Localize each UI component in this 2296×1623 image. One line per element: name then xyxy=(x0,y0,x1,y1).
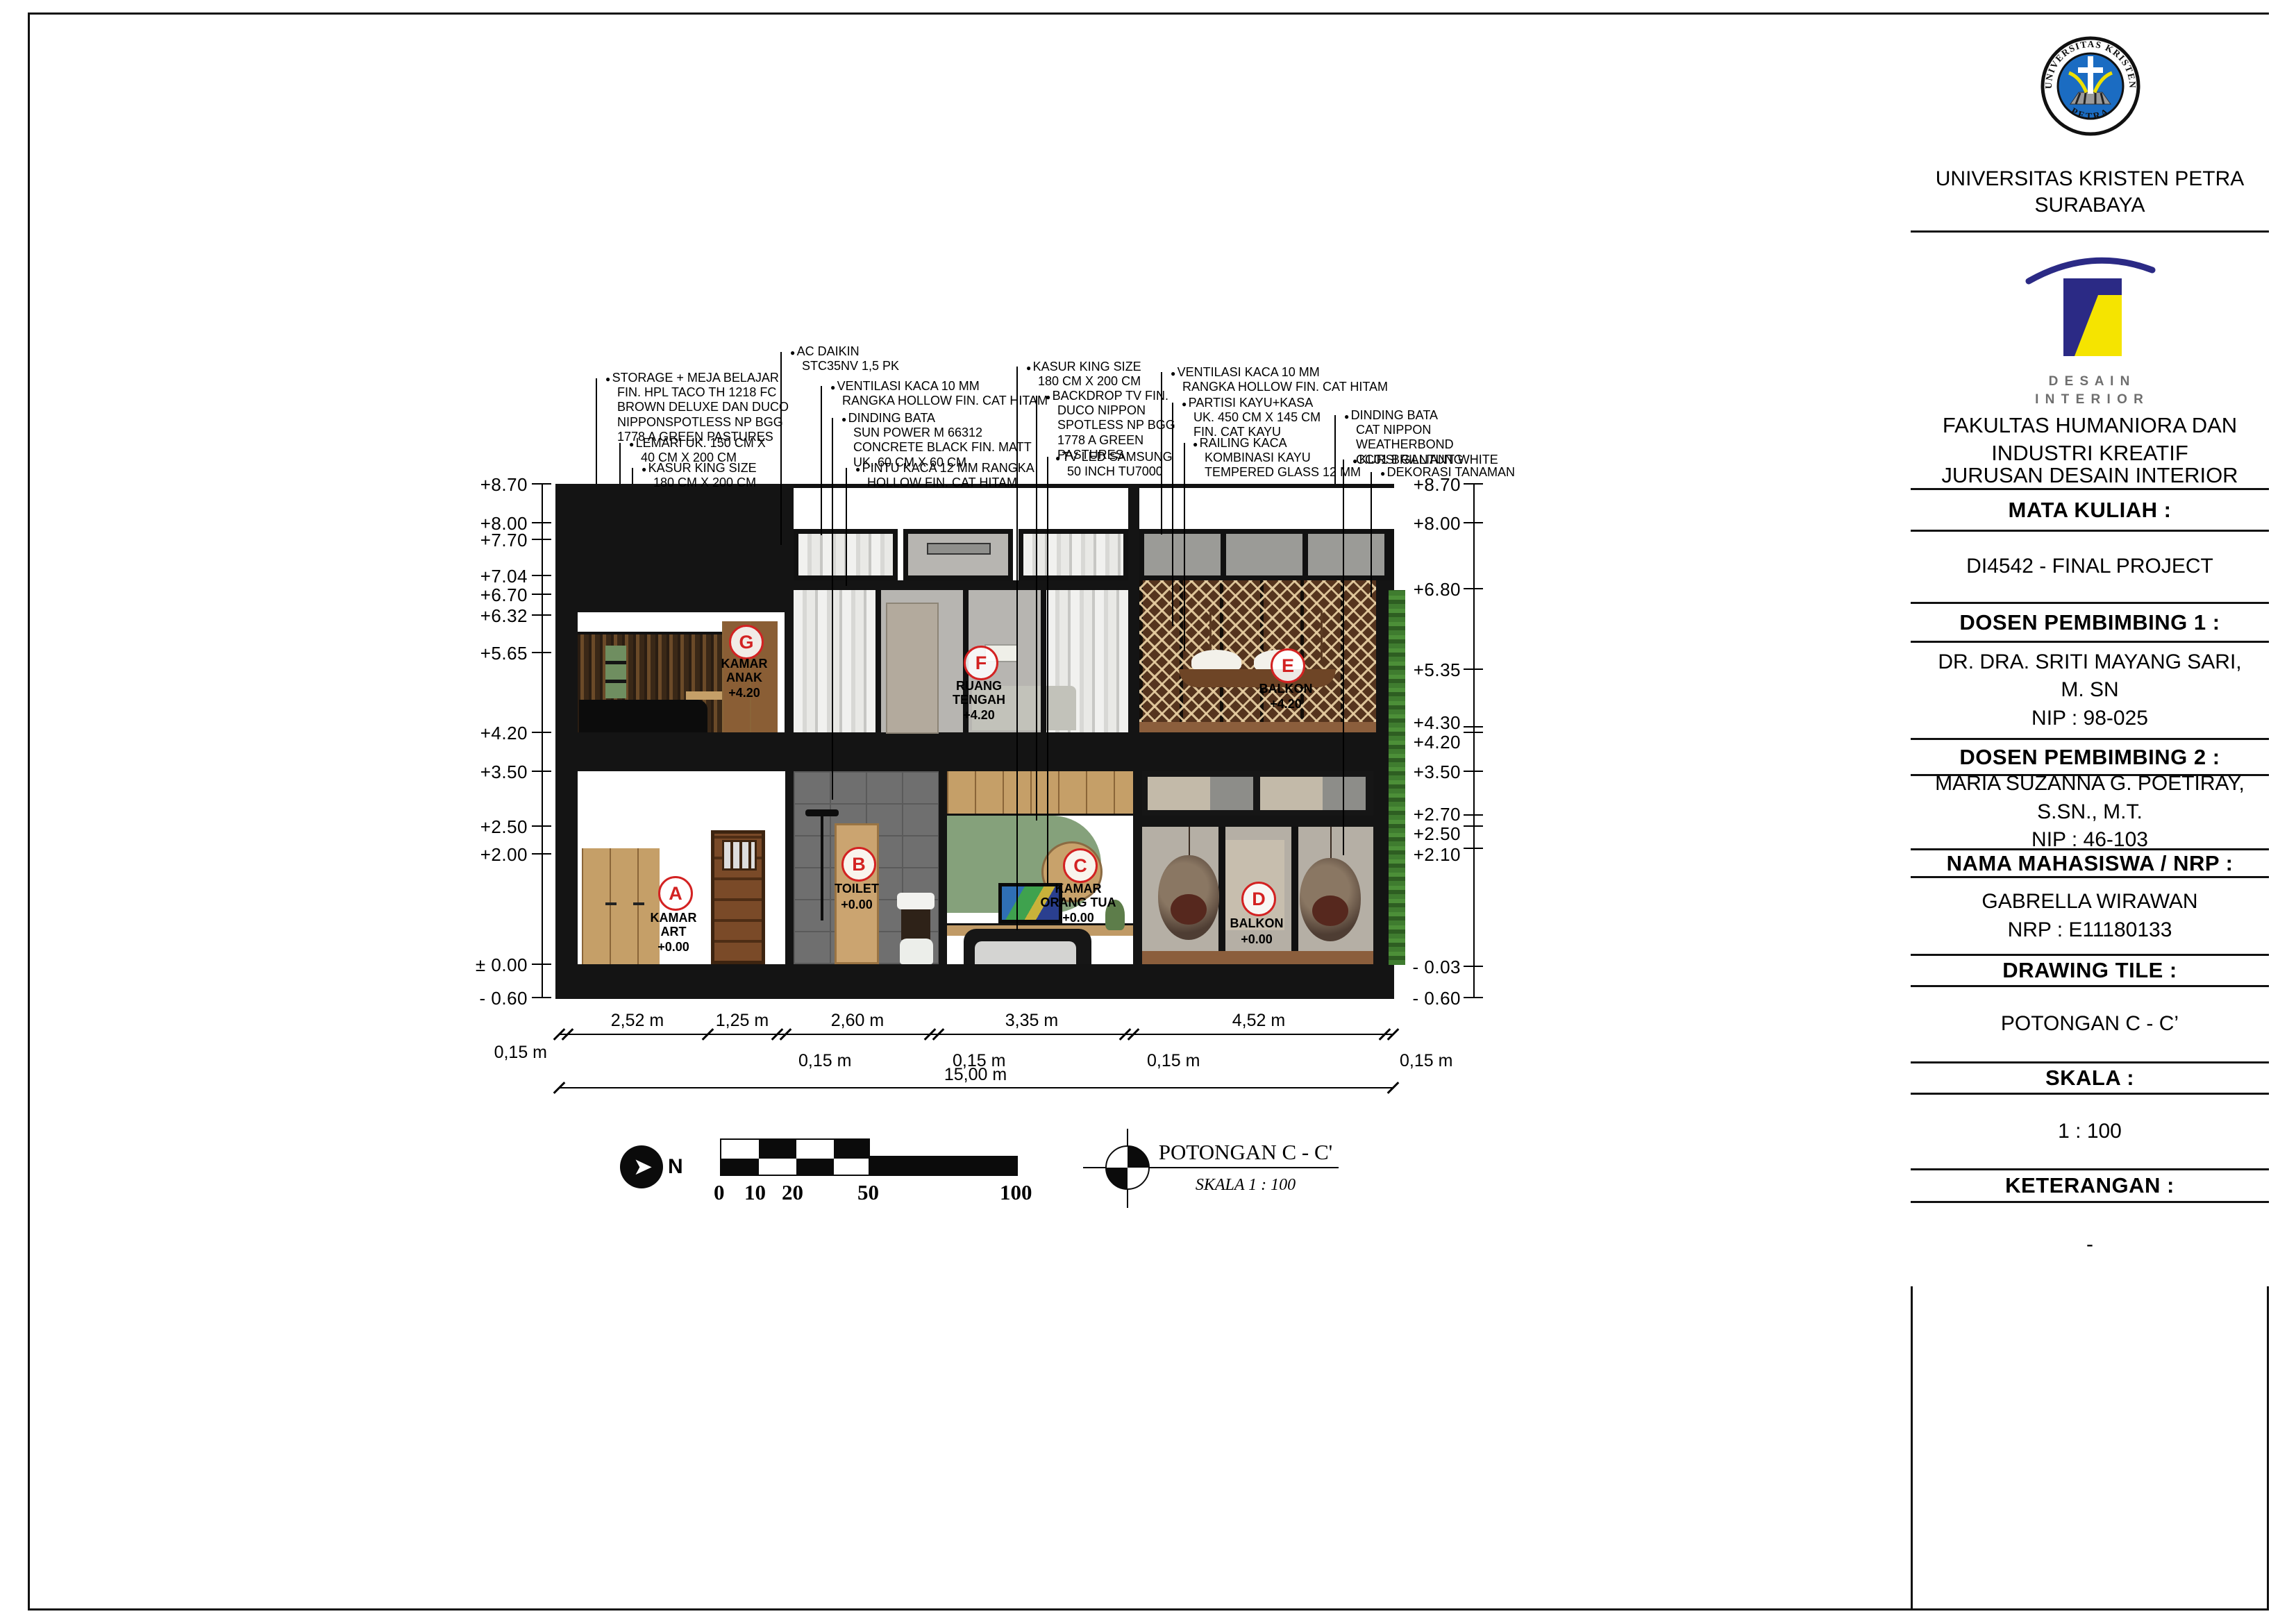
elevation-tick xyxy=(532,825,551,827)
leader-line xyxy=(1343,460,1344,855)
elevation-tick xyxy=(532,652,551,653)
room-level-g: +4.20 xyxy=(689,686,800,700)
dimension-segment: 2,60 m xyxy=(809,1011,906,1031)
ac-unit xyxy=(927,543,991,555)
kamar-anak-cushion-panel xyxy=(605,646,626,698)
wall-c-d xyxy=(1133,771,1142,964)
annotation-ventilasi-kanan: VENTILASI KACA 10 MM RANGKA HOLLOW FIN. … xyxy=(1171,365,1391,394)
leader-line xyxy=(619,443,621,484)
mullion-f3 xyxy=(1041,590,1046,732)
transom-window-f3 xyxy=(1019,529,1128,580)
elevation-label-left: +7.70 xyxy=(444,530,528,551)
scale-number: 10 xyxy=(744,1180,766,1205)
leader-line xyxy=(1371,472,1372,597)
transom-window-e xyxy=(1139,529,1394,580)
university-name: UNIVERSITAS KRISTEN PETRA SURABAYA xyxy=(1911,166,2269,218)
room-level-f: +4.20 xyxy=(923,708,1034,723)
right-elevation-ruler xyxy=(1473,484,1475,998)
elevation-label-right: +5.35 xyxy=(1405,659,1461,681)
annotation-pintu-kaca: PINTU KACA 12 MM RANGKA HOLLOW FIN. CAT … xyxy=(855,461,1055,490)
elevation-tick xyxy=(532,997,551,998)
wall-thickness-label: 0,15 m xyxy=(1147,1051,1214,1071)
elevation-tick xyxy=(1464,848,1483,849)
elevation-tick xyxy=(1464,668,1483,670)
scale-bar-solid xyxy=(870,1156,1018,1176)
glass-wall-header xyxy=(794,580,1128,590)
elevation-tick xyxy=(1464,588,1483,589)
room-letter-d: D xyxy=(1241,882,1276,916)
section-title: POTONGAN C - C' xyxy=(1153,1140,1339,1165)
elevation-label-left: +6.70 xyxy=(444,585,528,606)
upper-cabinet-c xyxy=(947,771,1133,816)
elevation-tick xyxy=(532,522,551,523)
roof-slab-left xyxy=(578,484,794,612)
elevation-tick xyxy=(532,539,551,540)
dosen1-header: DOSEN PEMBIMBING 1 : xyxy=(1911,604,2269,643)
room-level-d: +0.00 xyxy=(1201,932,1312,947)
elevation-label-right: +4.30 xyxy=(1405,712,1461,734)
section-scale-note: SKALA 1 : 100 xyxy=(1153,1176,1339,1195)
chair-rope-2 xyxy=(1330,827,1332,860)
parapet-band xyxy=(794,484,1394,529)
elevation-label-left: +8.70 xyxy=(444,474,528,496)
sheet: { "titleblock": { "university_ring_top":… xyxy=(0,0,2296,1623)
wall-b-c xyxy=(939,771,947,964)
elevation-tick xyxy=(532,853,551,855)
wall-thickness-label: 0,15 m xyxy=(798,1051,865,1071)
annotation-ac-daikin: AC DAIKIN STC35NV 1,5 PK xyxy=(790,344,934,373)
room-letter-e: E xyxy=(1271,648,1305,683)
shower-head xyxy=(805,809,839,816)
room-letter-g: G xyxy=(729,625,764,659)
room-letter-a: A xyxy=(658,876,693,911)
elevation-label-right: +3.50 xyxy=(1405,762,1461,783)
keterangan-value: - xyxy=(1911,1203,2269,1286)
elevation-label-left: +2.00 xyxy=(444,844,528,866)
kamar-anak-furniture xyxy=(579,700,707,732)
leader-line xyxy=(596,378,597,484)
wall-thickness-label: 0,15 m xyxy=(1400,1051,1466,1071)
elevation-label-right: +6.80 xyxy=(1405,579,1461,600)
room-name-f: RUANG TENGAH xyxy=(923,679,1034,707)
dimension-line xyxy=(559,1034,1393,1035)
bed-blanket xyxy=(975,941,1076,964)
elevation-tick xyxy=(1464,726,1483,728)
leader-line xyxy=(632,468,633,484)
leader-line xyxy=(821,386,822,535)
elevation-tick xyxy=(1464,732,1483,733)
elevation-label-left: +4.20 xyxy=(444,723,528,744)
mata-kuliah-value: DI4542 - FINAL PROJECT xyxy=(1911,532,2269,604)
basin-cabinet xyxy=(901,909,930,940)
elevation-tick xyxy=(1464,825,1483,827)
elevation-tick xyxy=(1464,522,1483,523)
transom-window-f2 xyxy=(903,529,1013,580)
section-marker-icon xyxy=(1105,1145,1150,1190)
room-name-b: TOILET xyxy=(801,882,912,895)
floor-slab xyxy=(560,732,1394,771)
balkon-d-header xyxy=(1142,816,1373,827)
scale-number: 20 xyxy=(782,1180,803,1205)
vertical-garden xyxy=(1389,590,1405,965)
door-window xyxy=(722,840,757,871)
drawing-title-value: POTONGAN C - C’ xyxy=(1911,987,2269,1063)
elevation-label-right: +2.70 xyxy=(1405,804,1461,825)
elevation-label-right: +8.70 xyxy=(1405,474,1461,496)
nama-header: NAMA MAHASISWA / NRP : xyxy=(1911,850,2269,878)
elevation-label-right: +2.10 xyxy=(1405,844,1461,866)
skala-header: SKALA : xyxy=(1911,1063,2269,1095)
faculty-name: FAKULTAS HUMANIORA DAN INDUSTRI KREATIF xyxy=(1911,412,2269,468)
room-name-d: BALKON xyxy=(1201,916,1312,930)
elevation-tick xyxy=(532,614,551,616)
glass-panel-f1 xyxy=(794,590,875,732)
elevation-label-left: +5.65 xyxy=(444,643,528,664)
wall-a-b xyxy=(785,771,794,964)
elevation-tick xyxy=(532,732,551,733)
wardrobe-handle-2 xyxy=(633,902,644,905)
scale-number: 0 xyxy=(714,1180,725,1205)
dimension-segment: 1,25 m xyxy=(694,1011,791,1031)
scale-number: 100 xyxy=(1000,1180,1032,1205)
elevation-label-right: - 0.03 xyxy=(1405,957,1461,978)
room-name-c: KAMAR ORANG TUA xyxy=(1023,882,1134,909)
dosen2-value: MARIA SUZANNA G. POETIRAY, S.SN., M.T. N… xyxy=(1911,776,2269,850)
annotation-tv-led: TV LED SAMSUNG 50 INCH TU7000 xyxy=(1055,450,1199,479)
toilet-bowl xyxy=(900,939,933,964)
annotation-kasur-kanan: KASUR KING SIZE 180 CM X 200 CM xyxy=(1026,360,1177,389)
elevation-label-left: ± 0.00 xyxy=(444,955,528,976)
room-name-e: BALKON xyxy=(1230,682,1341,696)
total-dimension-label: 15,00 m xyxy=(927,1065,1024,1085)
elevation-tick xyxy=(1464,483,1483,485)
elevation-tick xyxy=(532,575,551,576)
balkon-e-floor xyxy=(1139,722,1376,732)
nama-value: GABRELLA WIRAWAN NRP : E11180133 xyxy=(1911,878,2269,956)
drawing-title-header: DRAWING TILE : xyxy=(1911,956,2269,987)
elevation-tick xyxy=(532,771,551,772)
room-letter-f: F xyxy=(964,646,998,680)
room-level-e: +4.20 xyxy=(1230,697,1341,712)
wall-thickness-label: 0,15 m xyxy=(480,1043,547,1063)
dosen1-value: DR. DRA. SRITI MAYANG SARI, M. SN NIP : … xyxy=(1911,643,2269,740)
elevation-tick xyxy=(532,483,551,485)
mata-kuliah-header: MATA KULIAH : xyxy=(1911,490,2269,532)
elevation-tick xyxy=(532,594,551,595)
elevation-label-right: - 0.60 xyxy=(1405,988,1461,1009)
wardrobe-handle-1 xyxy=(605,902,617,905)
room-name-g: KAMAR ANAK xyxy=(689,657,800,684)
desain-interior-logo xyxy=(2020,245,2159,373)
elevation-label-left: +6.32 xyxy=(444,605,528,627)
room-letter-b: B xyxy=(841,847,876,882)
mullion-f1 xyxy=(875,590,881,732)
wall-f-e xyxy=(1128,484,1139,732)
dimension-segment: 4,52 m xyxy=(1210,1011,1307,1031)
elevation-label-left: +3.50 xyxy=(444,762,528,783)
elevation-tick xyxy=(1464,814,1483,816)
elevation-label-right: +2.50 xyxy=(1405,823,1461,845)
total-dimension-line xyxy=(559,1087,1393,1088)
north-arrow-icon: ➤ xyxy=(620,1145,663,1188)
elevation-tick xyxy=(532,964,551,965)
annotation-kasur-kiri: KASUR KING SIZE 180 CM X 200 CM xyxy=(642,461,799,490)
room-name-a: KAMAR ART xyxy=(618,911,729,939)
elevation-label-left: +2.50 xyxy=(444,816,528,838)
balkon-d-transom xyxy=(1142,771,1373,816)
scale-bar xyxy=(720,1138,870,1176)
balkon-d-floor xyxy=(1142,951,1373,964)
bench-rope-2 xyxy=(1321,611,1323,659)
dimension-segment: 3,35 m xyxy=(983,1011,1080,1031)
department-name: JURUSAN DESAIN INTERIOR xyxy=(1911,463,2269,488)
elevation-label-right: +8.00 xyxy=(1405,513,1461,535)
egg-chair-2-seat xyxy=(1312,895,1348,926)
room-level-b: +0.00 xyxy=(801,898,912,912)
annotation-partisi: PARTISI KAYU+KASA UK. 450 CM X 145 CM FI… xyxy=(1182,396,1353,440)
annotation-ventilasi-kiri: VENTILASI KACA 10 MM RANGKA HOLLOW FIN. … xyxy=(830,379,1050,408)
leader-line xyxy=(846,468,847,586)
elevation-label-right: +4.20 xyxy=(1405,732,1461,753)
keterangan-header: KETERANGAN : xyxy=(1911,1170,2269,1203)
titleblock-faculty-row: D E S A I N I N T E R I O R FAKULTAS HUM… xyxy=(1911,233,2269,490)
elevation-tick xyxy=(1464,966,1483,967)
dimension-segment: 2,52 m xyxy=(589,1011,686,1031)
foundation-slab xyxy=(555,964,1394,999)
north-label: N xyxy=(668,1155,683,1179)
elevation-label-left: - 0.60 xyxy=(444,988,528,1009)
room-level-c: +0.00 xyxy=(1023,911,1134,925)
desain-interior-logo-text: D E S A I N I N T E R I O R xyxy=(1911,373,2269,408)
left-elevation-ruler xyxy=(542,484,543,998)
leader-line xyxy=(832,418,833,800)
scale-number: 50 xyxy=(857,1180,879,1205)
annotation-storage: STORAGE + MEJA BELAJAR FIN. HPL TACO TH … xyxy=(605,371,791,444)
room-letter-c: C xyxy=(1063,848,1098,883)
titleblock-university-row: UNIVERSITAS KRISTEN PETRA UNIVERSITAS KR… xyxy=(1911,15,2269,233)
elevation-tick xyxy=(1464,997,1483,998)
petra-university-logo: UNIVERSITAS KRISTEN PETRA xyxy=(2040,35,2141,137)
elevation-tick xyxy=(1464,771,1483,772)
leader-line xyxy=(1047,457,1048,884)
skala-value: 1 : 100 xyxy=(1911,1095,2269,1170)
room-level-a: +0.00 xyxy=(618,940,729,955)
